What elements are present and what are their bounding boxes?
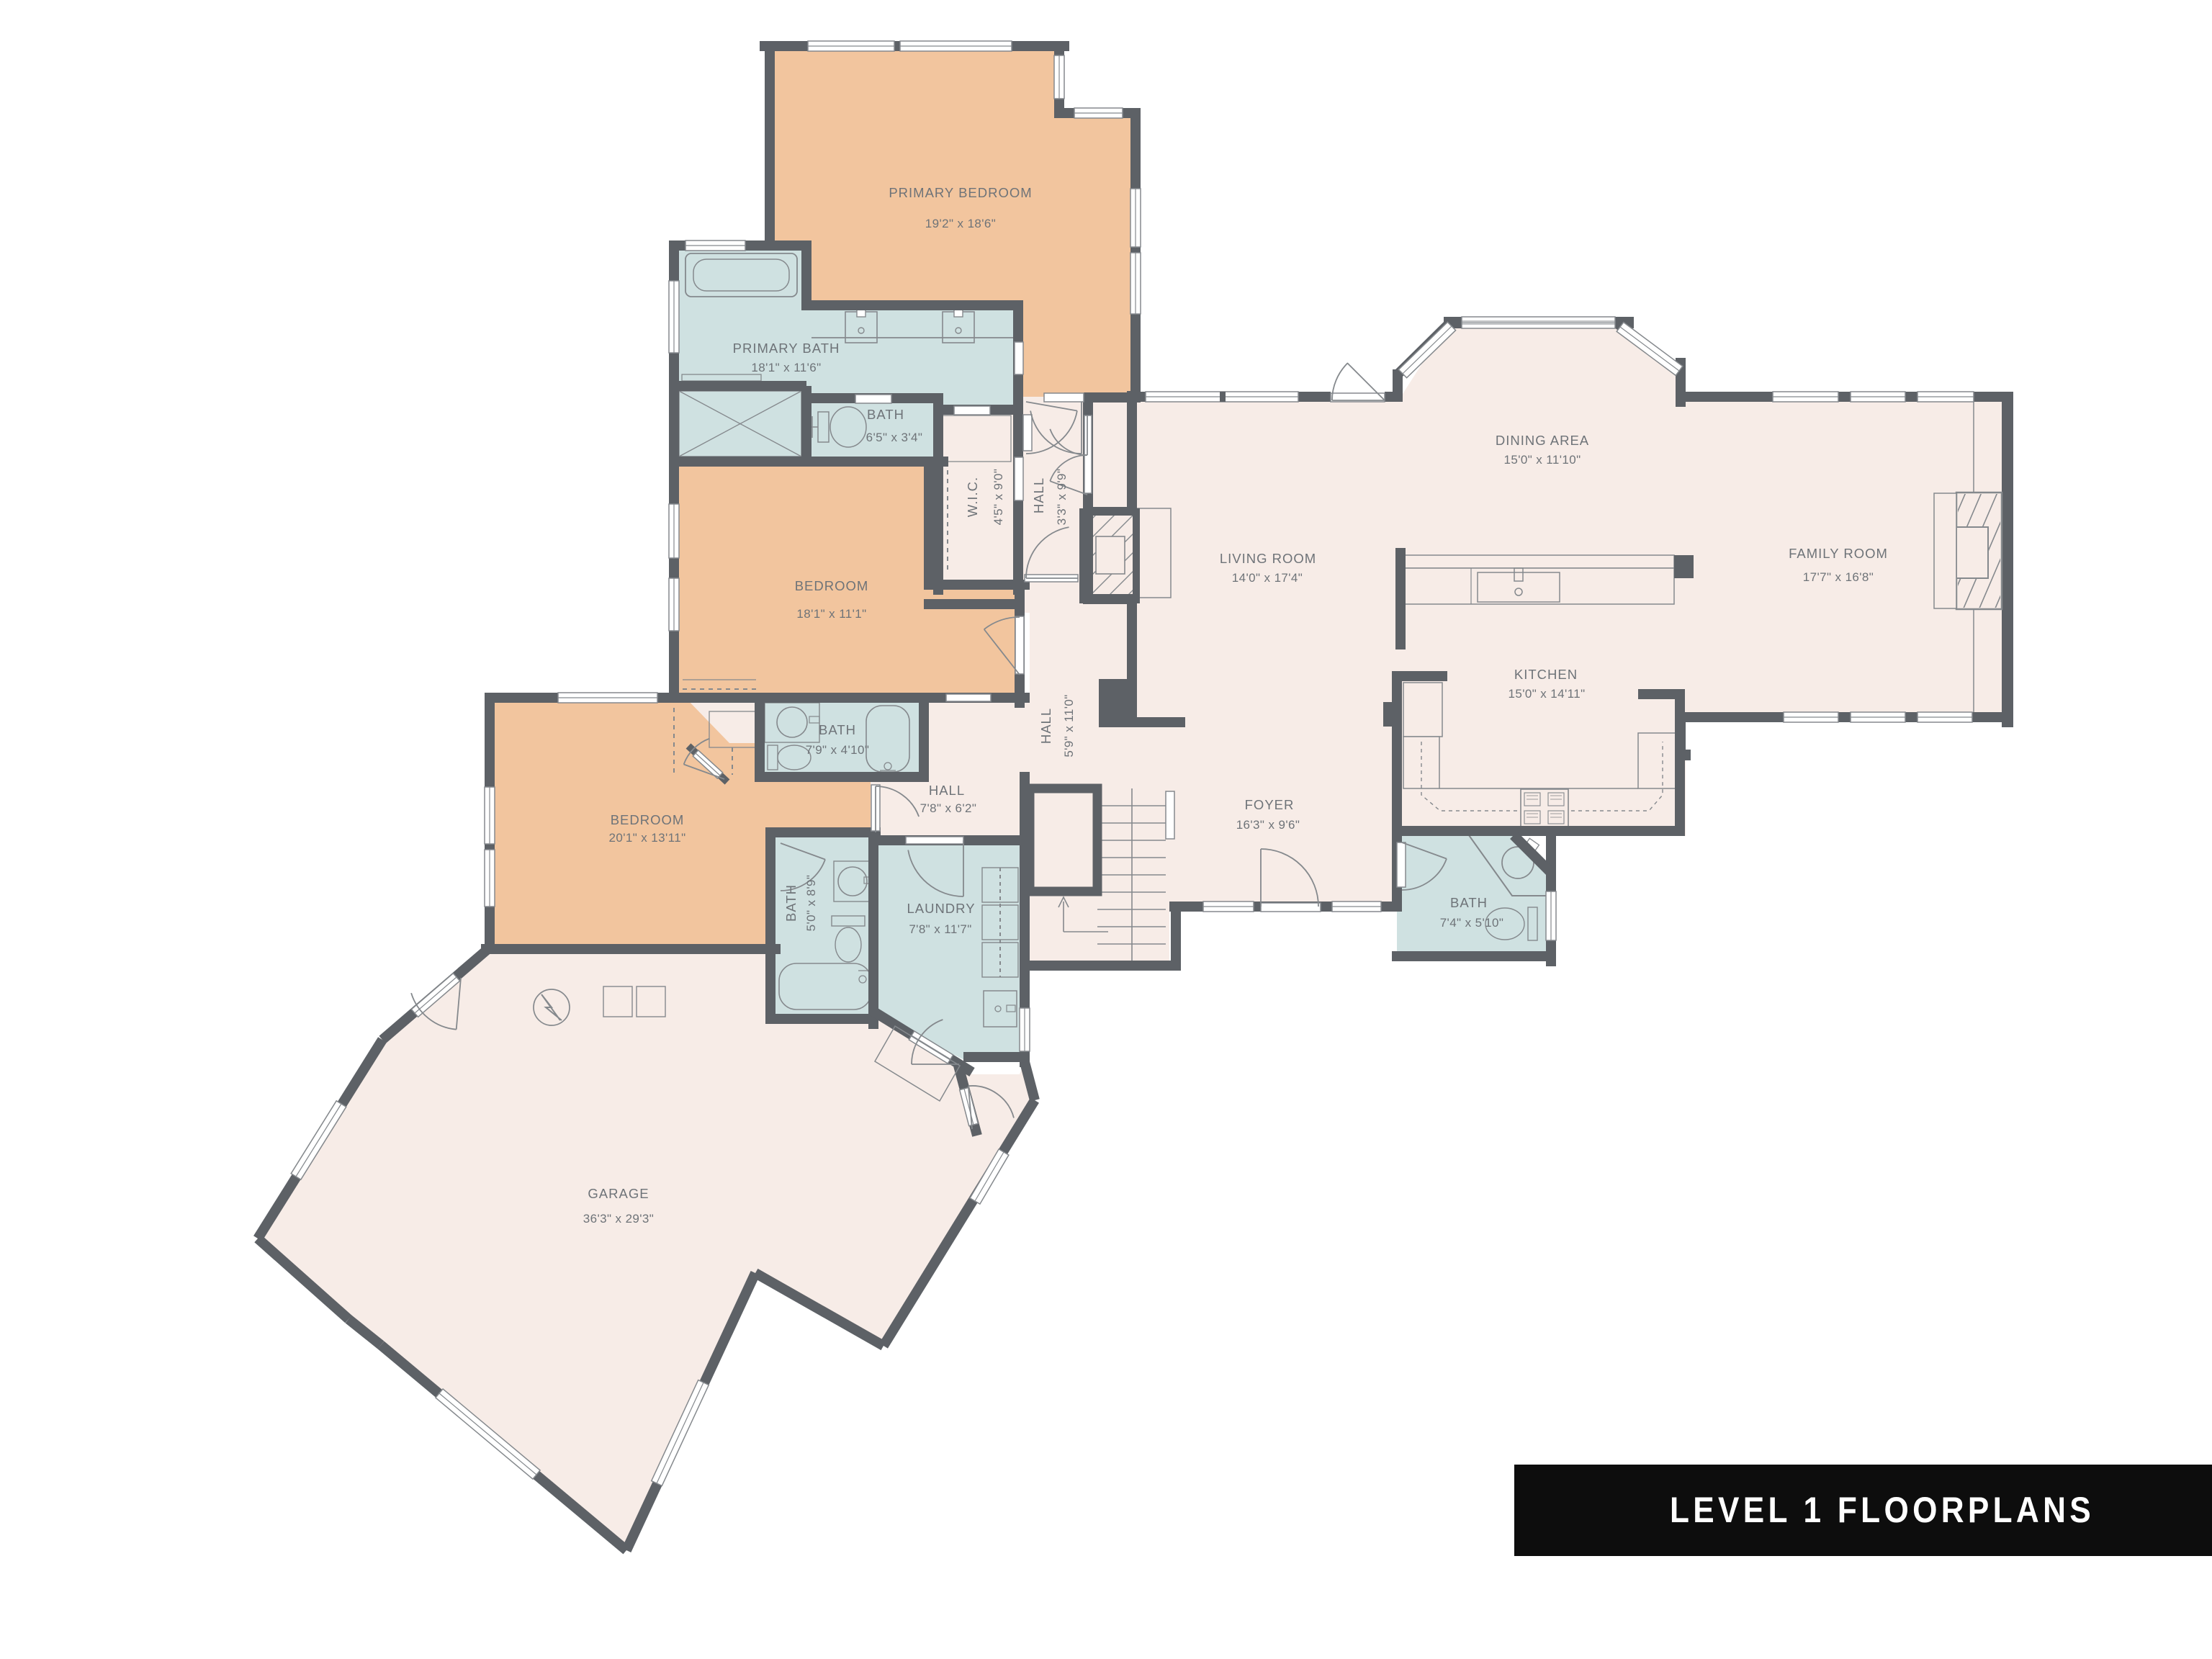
svg-text:7'8" x 11'7": 7'8" x 11'7" xyxy=(909,922,971,936)
svg-text:LIVING ROOM: LIVING ROOM xyxy=(1220,551,1316,566)
svg-text:DINING AREA: DINING AREA xyxy=(1496,433,1589,448)
svg-text:18'1" x 11'1": 18'1" x 11'1" xyxy=(796,607,866,621)
svg-text:BEDROOM: BEDROOM xyxy=(795,578,869,593)
svg-text:3'3" x 9'9": 3'3" x 9'9" xyxy=(1055,469,1069,526)
svg-text:LEVEL 1 FLOORPLANS: LEVEL 1 FLOORPLANS xyxy=(1670,1490,2095,1530)
svg-text:20'1" x 13'11": 20'1" x 13'11" xyxy=(608,831,685,845)
svg-text:17'7" x 16'8": 17'7" x 16'8" xyxy=(1803,570,1874,584)
svg-text:GARAGE: GARAGE xyxy=(588,1186,649,1201)
svg-text:FAMILY ROOM: FAMILY ROOM xyxy=(1789,546,1888,561)
svg-text:18'1" x 11'6": 18'1" x 11'6" xyxy=(751,361,821,374)
svg-text:7'8" x 6'2": 7'8" x 6'2" xyxy=(920,801,977,815)
svg-text:PRIMARY BEDROOM: PRIMARY BEDROOM xyxy=(889,185,1032,200)
svg-text:5'9" x 11'0": 5'9" x 11'0" xyxy=(1062,694,1076,757)
svg-text:7'4" x 5'10": 7'4" x 5'10" xyxy=(1440,916,1504,930)
svg-text:19'2" x 18'6": 19'2" x 18'6" xyxy=(925,217,996,230)
svg-text:KITCHEN: KITCHEN xyxy=(1514,667,1578,682)
svg-text:BEDROOM: BEDROOM xyxy=(611,812,685,827)
svg-text:15'0" x 11'10": 15'0" x 11'10" xyxy=(1503,453,1581,467)
svg-text:BATH: BATH xyxy=(783,884,799,922)
svg-text:4'5" x 9'0": 4'5" x 9'0" xyxy=(992,469,1005,526)
svg-text:FOYER: FOYER xyxy=(1245,797,1295,812)
svg-text:HALL: HALL xyxy=(1031,477,1046,513)
svg-text:5'0" x 8'9": 5'0" x 8'9" xyxy=(804,875,818,932)
svg-text:BATH: BATH xyxy=(867,407,904,422)
svg-text:6'5" x 3'4": 6'5" x 3'4" xyxy=(866,431,923,444)
svg-text:16'3" x 9'6": 16'3" x 9'6" xyxy=(1236,818,1300,832)
svg-text:14'0" x 17'4": 14'0" x 17'4" xyxy=(1232,571,1303,585)
svg-text:7'9" x 4'10": 7'9" x 4'10" xyxy=(806,743,870,757)
svg-text:BATH: BATH xyxy=(1450,895,1488,910)
svg-text:HALL: HALL xyxy=(929,783,965,798)
svg-text:W.I.C.: W.I.C. xyxy=(965,477,980,517)
svg-text:15'0" x 14'11": 15'0" x 14'11" xyxy=(1508,687,1585,701)
svg-text:BATH: BATH xyxy=(819,722,856,737)
svg-text:36'3" x 29'3": 36'3" x 29'3" xyxy=(583,1212,654,1226)
svg-text:LAUNDRY: LAUNDRY xyxy=(907,901,975,916)
svg-text:HALL: HALL xyxy=(1038,708,1053,744)
svg-text:PRIMARY BATH: PRIMARY BATH xyxy=(733,341,840,356)
